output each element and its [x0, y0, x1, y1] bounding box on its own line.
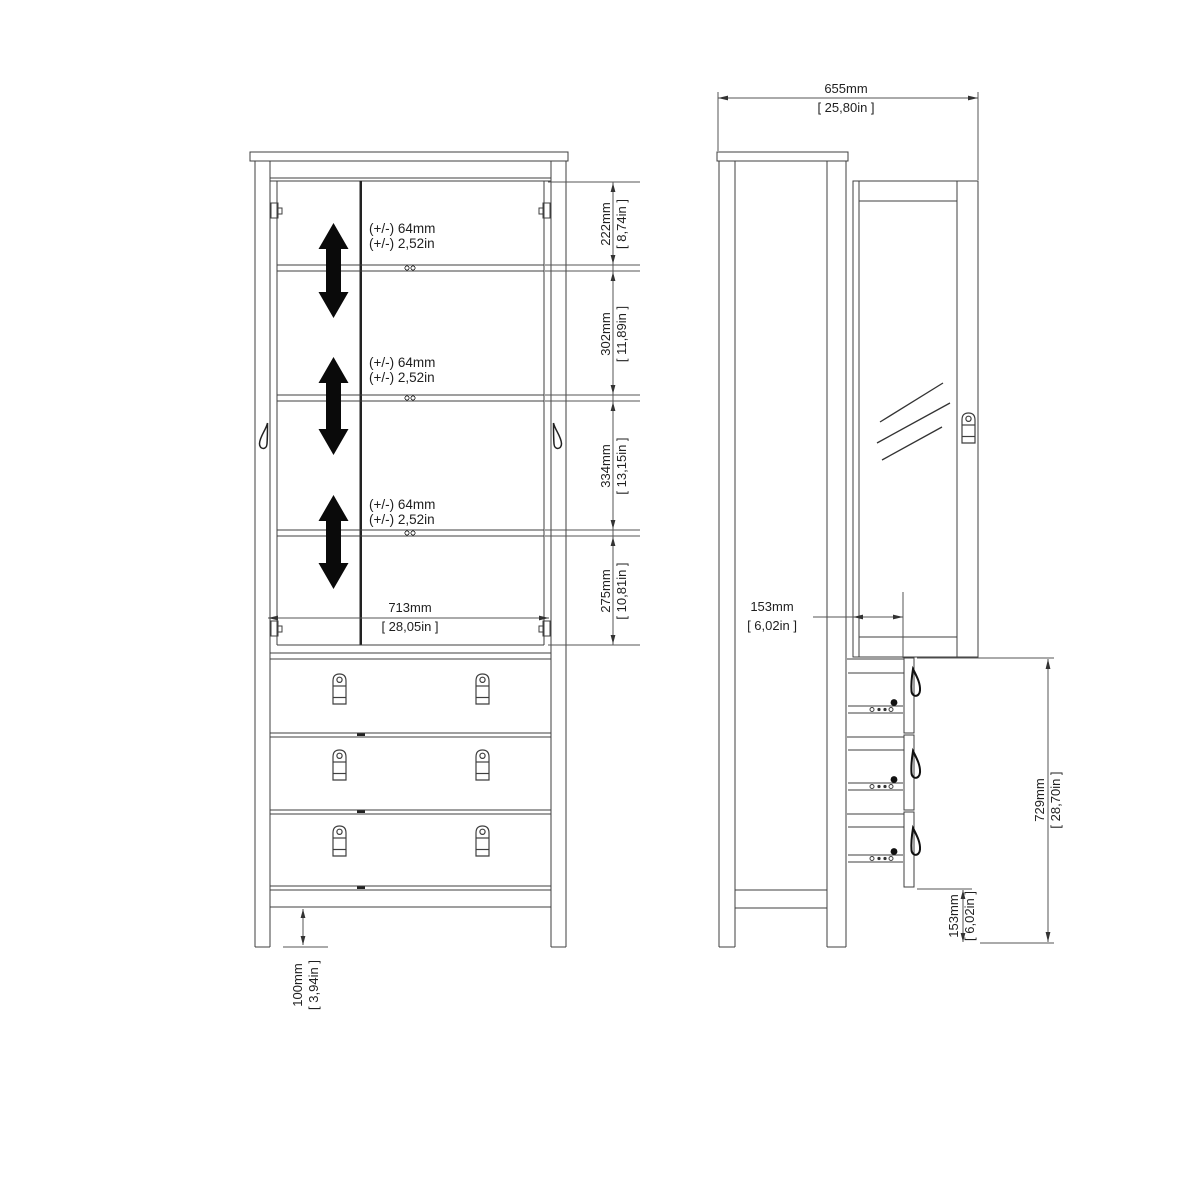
- shelf-adjust-label-3: (+/-) 64mm (+/-) 2,52in: [369, 497, 435, 527]
- drawer-runner-icon: [848, 776, 903, 790]
- dim-leg-height: 100mm [ 3,94in ]: [287, 925, 323, 1045]
- drawer-runner-icon: [848, 848, 903, 862]
- side-door-handle-icon: [962, 413, 975, 443]
- drawer-gap-marks: [357, 734, 365, 890]
- dim-section-302: 302mm [ 11,89in ]: [595, 274, 631, 394]
- side-drawer3-front: [904, 812, 914, 887]
- drawer-handle-icon: [476, 674, 489, 704]
- drawer-handle-icon: [476, 826, 489, 856]
- dim-depth: 655mm [ 25,80in ]: [786, 82, 906, 114]
- dim-leg-height-mm: 100mm: [291, 963, 304, 1006]
- drawer-hook-handle-icon: [911, 828, 920, 855]
- dim-section-275: 275mm [ 10,81in ]: [595, 531, 631, 651]
- dim-section-275-mm: 275mm: [599, 569, 612, 612]
- drawer-handle-icon: [333, 826, 346, 856]
- left-door-pull-icon: [259, 423, 267, 448]
- front-view-structure: [250, 152, 568, 947]
- drawer-handle-icon: [476, 750, 489, 780]
- dim-drawer-offset: 153mm [ 6,02in ]: [712, 600, 832, 632]
- drawer-runner-icons: [848, 669, 920, 862]
- shelf-adjust-label-3-in: (+/-) 2,52in: [369, 512, 435, 527]
- front-top-board: [250, 152, 568, 161]
- dim-section-275-in: [ 10,81in ]: [615, 562, 628, 619]
- dim-section-334-mm: 334mm: [599, 444, 612, 487]
- front-door-divider: [360, 181, 363, 645]
- shelf-adjust-label-1-mm: (+/-) 64mm: [369, 221, 435, 236]
- dim-drawer-offset-in: [ 6,02in ]: [747, 619, 797, 632]
- dim-plinth-height: 153mm [ 6,02in ]: [943, 856, 979, 976]
- dim-section-302-mm: 302mm: [599, 312, 612, 355]
- dim-section-302-in: [ 11,89in ]: [615, 306, 628, 362]
- door-pull-icons: [259, 423, 561, 448]
- shelf-adjust-label-2-mm: (+/-) 64mm: [369, 355, 435, 370]
- dim-plinth-height-in: [ 6,02in ]: [963, 891, 976, 941]
- dim-drawer-section-height-mm: 729mm: [1033, 778, 1046, 821]
- glass-hatch-icon: [877, 383, 950, 460]
- right-door-pull-icon: [554, 423, 562, 448]
- up-down-arrow-icon: [319, 357, 349, 455]
- side-dimension-arrowheads: [718, 96, 1050, 942]
- dim-section-222-mm: 222mm: [599, 202, 612, 245]
- shelf-adjust-label-1: (+/-) 64mm (+/-) 2,52in: [369, 221, 435, 251]
- shelf-adjust-label-1-in: (+/-) 2,52in: [369, 236, 435, 251]
- shelf-adjust-label-2: (+/-) 64mm (+/-) 2,52in: [369, 355, 435, 385]
- shelf-adjust-label-3-mm: (+/-) 64mm: [369, 497, 435, 512]
- dim-section-334-in: [ 13,15in ]: [615, 437, 628, 494]
- dim-section-222: 222mm [ 8,74in ]: [595, 164, 631, 284]
- shelf-adjust-label-2-in: (+/-) 2,52in: [369, 370, 435, 385]
- dim-plinth-height-mm: 153mm: [947, 894, 960, 937]
- shelf-adjust-arrow-icons: [319, 223, 349, 589]
- drawer-hook-handle-icon: [911, 669, 920, 696]
- side-glass-door: [853, 181, 978, 657]
- drawer-handle-icon: [333, 750, 346, 780]
- dim-interior-width: 713mm [ 28,05in ]: [350, 601, 470, 633]
- dim-depth-in: [ 25,80in ]: [817, 101, 874, 114]
- side-dimension-lines: [718, 92, 1054, 943]
- dim-leg-height-in: [ 3,94in ]: [307, 960, 320, 1010]
- drawer-handle-icon: [333, 674, 346, 704]
- side-drawer2-front: [904, 735, 914, 810]
- dim-interior-width-in: [ 28,05in ]: [381, 620, 438, 633]
- dim-drawer-offset-mm: 153mm: [750, 600, 793, 613]
- technical-drawing-page: (+/-) 64mm (+/-) 2,52in (+/-) 64mm (+/-)…: [0, 0, 1200, 1200]
- drawer-hook-handle-icon: [911, 751, 920, 778]
- dim-drawer-section-height-in: [ 28,70in ]: [1049, 771, 1062, 828]
- dim-section-222-in: [ 8,74in ]: [615, 199, 628, 249]
- up-down-arrow-icon: [319, 495, 349, 589]
- dim-section-334: 334mm [ 13,15in ]: [595, 406, 631, 526]
- dim-depth-mm: 655mm: [824, 82, 867, 95]
- dim-interior-width-mm: 713mm: [388, 601, 431, 614]
- side-view-structure: [717, 152, 978, 947]
- drawer-runner-icon: [848, 699, 903, 713]
- dim-drawer-section-height: 729mm [ 28,70in ]: [1029, 740, 1065, 860]
- side-top-board: [717, 152, 848, 161]
